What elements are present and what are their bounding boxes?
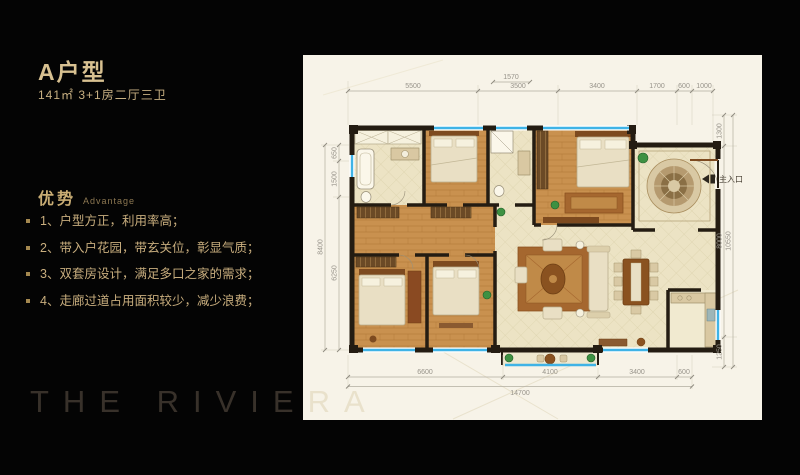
- bullet-icon: [26, 272, 30, 276]
- bullet-icon: [26, 246, 30, 250]
- page-title: A户型: [38, 53, 107, 87]
- unit-spec-subtitle: 141㎡ 3+1房二厅三卫: [38, 86, 167, 103]
- advantage-item: 2、带入户花园，带玄关位，彰显气质；: [26, 235, 306, 262]
- dim-right-3: 1250: [717, 344, 724, 360]
- bottom-dimension-labels: 6600 4100 3400 600 14700: [417, 369, 690, 397]
- advantage-item-text: 4、走廊过道占用面积较少，减少浪费；: [40, 288, 259, 315]
- dim-bottom-3: 3400: [629, 369, 645, 376]
- dim-bottom-1: 6600: [417, 369, 433, 376]
- dim-left-3: 6250: [332, 265, 339, 281]
- dim-left-total: 8400: [318, 239, 325, 255]
- dim-top-sub: 1570: [503, 74, 519, 81]
- bullet-icon: [26, 219, 30, 223]
- entrance-label: 主入口: [702, 174, 743, 184]
- dim-right-1: 1300: [717, 123, 724, 139]
- dim-bottom-2: 4100: [542, 369, 558, 376]
- advantage-item: 1、户型方正，利用率高；: [26, 208, 306, 235]
- dim-bottom-total: 14700: [510, 390, 530, 397]
- dim-left-2: 1500: [332, 171, 339, 187]
- advantage-list: 1、户型方正，利用率高； 2、带入户花园，带玄关位，彰显气质； 3、双套房设计，…: [26, 208, 306, 314]
- dim-right-total: 10550: [726, 231, 733, 251]
- dim-bottom-4: 600: [678, 369, 690, 376]
- dim-top-1: 5500: [405, 83, 421, 90]
- entrance-arrow-bar-icon: [711, 175, 716, 184]
- top-dimension-labels: 5500 3500 1570 3400 1700 600 1000: [405, 74, 712, 90]
- dim-top-5: 600: [678, 83, 690, 90]
- dim-top-2: 3500: [510, 83, 526, 90]
- advantage-heading-en: Advantage: [83, 196, 135, 206]
- dim-top-6: 1000: [696, 83, 712, 90]
- advantage-item-text: 1、户型方正，利用率高；: [40, 208, 184, 235]
- dim-left-1: 650: [332, 147, 339, 159]
- advantage-item: 4、走廊过道占用面积较少，减少浪费；: [26, 288, 306, 315]
- floorplan-panel: 主入口: [303, 55, 762, 420]
- entrance-label-text: 主入口: [719, 174, 743, 184]
- bullet-icon: [26, 299, 30, 303]
- dim-top-3: 3400: [589, 83, 605, 90]
- left-dimension-labels: 650 1500 6250 8400: [318, 147, 339, 281]
- dim-top-4: 1700: [649, 83, 665, 90]
- advantage-item: 3、双套房设计，满足多口之家的需求；: [26, 261, 306, 288]
- advantage-heading-cn: 优势: [38, 191, 76, 208]
- closet-row: [355, 131, 421, 145]
- advantage-item-text: 2、带入户花园，带玄关位，彰显气质；: [40, 235, 259, 262]
- dim-right-2: 8000: [717, 233, 724, 249]
- floorplan-drawing: 主入口: [303, 55, 762, 420]
- bedroom-2-furniture: [429, 131, 479, 182]
- advantage-item-text: 3、双套房设计，满足多口之家的需求；: [40, 261, 259, 288]
- advantage-heading: 优势Advantage: [38, 185, 135, 209]
